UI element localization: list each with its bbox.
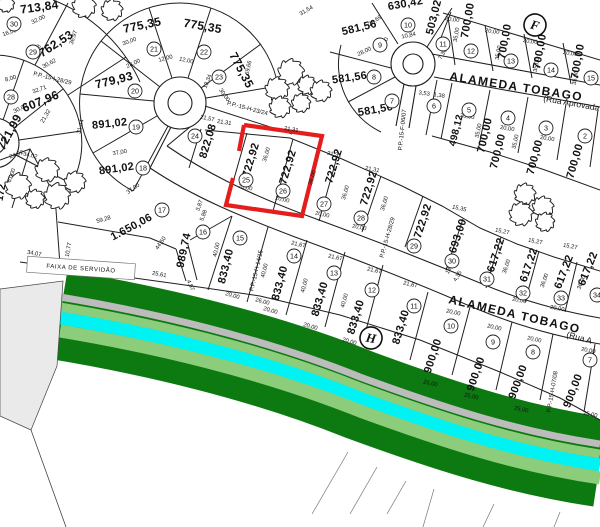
lot-number: 12 xyxy=(368,285,376,294)
lot-number: 14 xyxy=(547,65,555,74)
lot-number: 23 xyxy=(215,72,223,81)
lot-number: 14 xyxy=(290,251,298,260)
lot-number: 28 xyxy=(7,92,15,101)
lot-number: 6 xyxy=(432,101,436,110)
lot-number: 26 xyxy=(279,186,287,195)
lot-number: 16 xyxy=(199,227,207,236)
lot-number: 12 xyxy=(467,46,475,55)
lot-number: 2 xyxy=(583,131,587,140)
lot-number: 3 xyxy=(544,123,548,132)
lot-number: 10 xyxy=(447,321,455,330)
lot-number: 8 xyxy=(372,72,376,81)
lot-number: 10 xyxy=(404,20,412,29)
lot-number: 7 xyxy=(588,355,592,364)
lot-number: 22 xyxy=(200,47,208,56)
lot-number: 8 xyxy=(531,347,535,356)
lot-number: 13 xyxy=(330,268,338,277)
lot-number: 19 xyxy=(132,122,140,131)
lot-number: 31 xyxy=(483,274,491,283)
lot-number: 7 xyxy=(390,96,394,105)
lot-number: 21 xyxy=(150,44,158,53)
lot-number: 27 xyxy=(320,199,328,208)
lot-number: 5 xyxy=(467,105,471,114)
lot-number: 11 xyxy=(439,39,446,48)
lot-number: 13 xyxy=(507,56,515,65)
lot-number: 30 xyxy=(448,256,456,265)
lot-number: 11 xyxy=(410,301,417,310)
lot-number: 34 xyxy=(593,290,600,299)
lot-number: 33 xyxy=(557,293,565,302)
lot-number: 32 xyxy=(519,288,527,297)
lot-number: 28 xyxy=(357,213,365,222)
lot-number: 18 xyxy=(139,163,147,172)
lot-number: 15 xyxy=(236,233,244,242)
lot-number: 4 xyxy=(506,113,510,122)
plat-map-canvas[interactable]: 32,0016,0010,4836,9730,628,0032,7130,002… xyxy=(0,0,600,527)
lot-number: 20 xyxy=(131,86,139,95)
lot-number: 9 xyxy=(491,337,495,346)
lot-number: 9 xyxy=(378,40,382,49)
lot-number: 29 xyxy=(410,241,418,250)
lot-number: 17 xyxy=(158,205,166,214)
lot-number: 29 xyxy=(29,47,37,56)
lot-number: 25 xyxy=(242,175,250,184)
lot-number: 15 xyxy=(587,73,595,82)
lot-number: 30 xyxy=(10,19,18,28)
lot-number: 24 xyxy=(191,131,199,140)
